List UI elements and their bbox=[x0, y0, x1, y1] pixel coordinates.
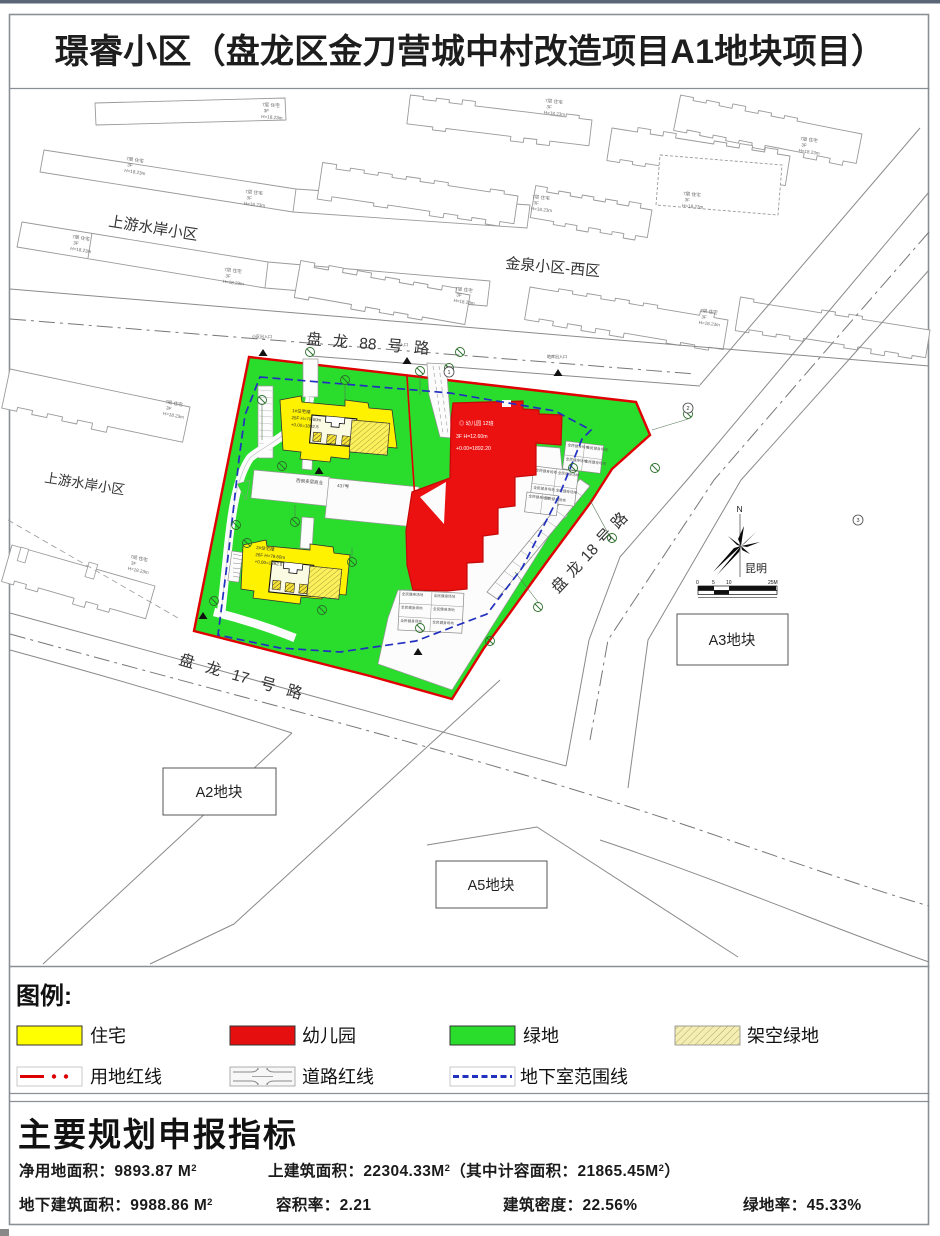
svg-text:25M: 25M bbox=[768, 580, 778, 586]
svg-text:◎ 幼儿园 12班: ◎ 幼儿园 12班 bbox=[459, 419, 494, 427]
svg-text:架空绿地: 架空绿地 bbox=[747, 1026, 819, 1046]
svg-text:道路红线: 道路红线 bbox=[302, 1067, 374, 1087]
svg-text:2: 2 bbox=[686, 406, 689, 412]
svg-text:绿地: 绿地 bbox=[523, 1026, 559, 1046]
svg-text:容积率：2.21: 容积率：2.21 bbox=[275, 1195, 371, 1214]
svg-text:小区出入口: 小区出入口 bbox=[252, 333, 272, 339]
svg-text:地下室范围线: 地下室范围线 bbox=[520, 1067, 628, 1087]
svg-text:上建筑面积：22304.33M2（其中计容面积：21865.: 上建筑面积：22304.33M2（其中计容面积：21865.45M2） bbox=[268, 1161, 680, 1180]
svg-text:绿地率：45.33%: 绿地率：45.33% bbox=[743, 1195, 862, 1214]
svg-text:3F: 3F bbox=[225, 273, 231, 279]
svg-text:地下建筑面积：9988.86 M2: 地下建筑面积：9988.86 M2 bbox=[19, 1195, 213, 1214]
svg-text:3F: 3F bbox=[264, 108, 270, 113]
svg-text:3F: 3F bbox=[127, 162, 133, 168]
svg-text:3F: 3F bbox=[684, 197, 690, 202]
svg-text:3F: 3F bbox=[246, 195, 252, 201]
svg-text:住宅: 住宅 bbox=[90, 1026, 126, 1046]
svg-text:A3地块: A3地块 bbox=[709, 632, 756, 649]
svg-text:5: 5 bbox=[712, 580, 715, 586]
svg-text:主要规划申报指标: 主要规划申报指标 bbox=[18, 1116, 298, 1153]
svg-text:地库出入口: 地库出入口 bbox=[547, 353, 567, 359]
svg-text:3F: 3F bbox=[456, 292, 462, 298]
svg-text:净用地面积：9893.87 M2: 净用地面积：9893.87 M2 bbox=[19, 1161, 197, 1180]
svg-text:A5地块: A5地块 bbox=[468, 877, 515, 894]
svg-text:3F: 3F bbox=[701, 314, 707, 320]
svg-text:3: 3 bbox=[856, 518, 859, 524]
svg-text:3F H=12.60m: 3F H=12.60m bbox=[456, 434, 488, 440]
svg-text:建筑密度：22.56%: 建筑密度：22.56% bbox=[503, 1195, 637, 1214]
svg-text:3F: 3F bbox=[73, 240, 79, 246]
svg-text:3F: 3F bbox=[801, 142, 807, 148]
svg-text:3F: 3F bbox=[546, 104, 552, 110]
svg-text:幼儿园: 幼儿园 bbox=[302, 1026, 356, 1046]
svg-text:N: N bbox=[737, 504, 743, 514]
svg-text:0: 0 bbox=[696, 580, 699, 586]
svg-text:3F: 3F bbox=[533, 200, 539, 206]
svg-text:+0.00=1892.20: +0.00=1892.20 bbox=[456, 446, 491, 452]
svg-text:10: 10 bbox=[726, 580, 732, 586]
svg-text:璟睿小区（盘龙区金刀营城中村改造项目A1地块项目）: 璟睿小区（盘龙区金刀营城中村改造项目A1地块项目） bbox=[55, 32, 885, 71]
svg-text:1: 1 bbox=[447, 370, 450, 376]
svg-text:用地红线: 用地红线 bbox=[90, 1067, 162, 1087]
svg-text:图例:: 图例: bbox=[16, 983, 72, 1010]
svg-text:A2地块: A2地块 bbox=[196, 784, 243, 801]
svg-text:出入口: 出入口 bbox=[396, 341, 408, 347]
svg-text:昆明: 昆明 bbox=[745, 562, 767, 575]
